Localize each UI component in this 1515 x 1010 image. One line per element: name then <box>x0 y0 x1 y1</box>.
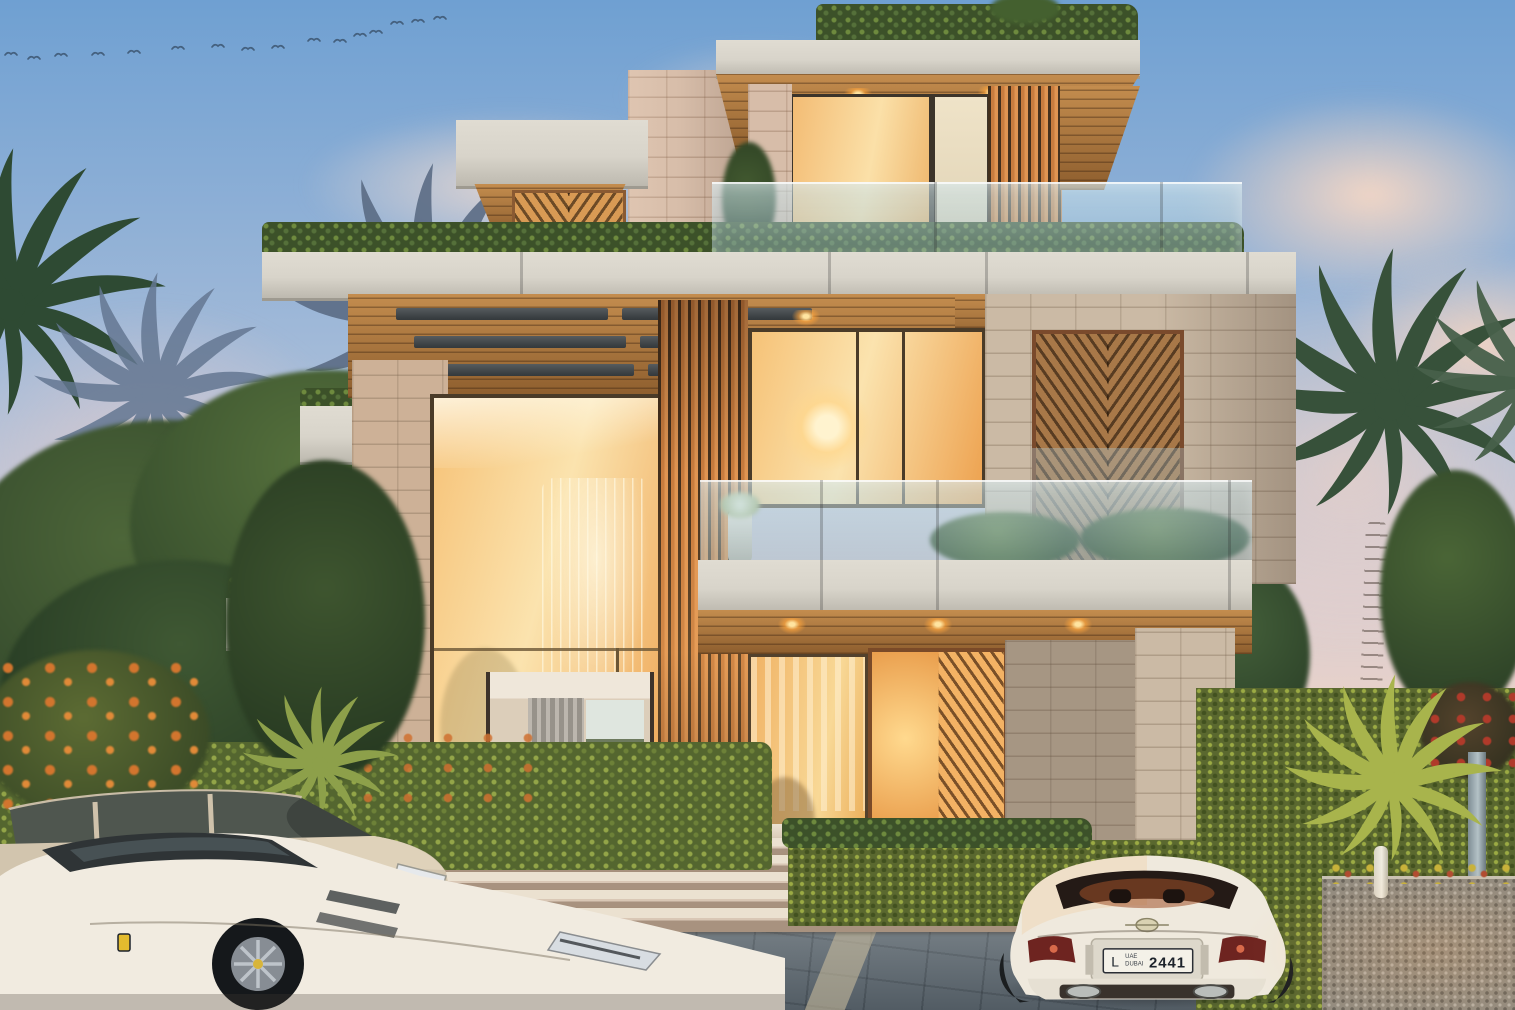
slab-joint <box>820 560 823 612</box>
plate-emirate: DUBAI <box>1125 962 1144 968</box>
sportscar-sill-shadow <box>0 994 785 1010</box>
coupe-headrest <box>1109 889 1131 903</box>
balustrade-joint <box>936 480 939 568</box>
penthouse-fascia <box>716 40 1140 79</box>
sportscar-badge <box>118 934 130 951</box>
ceiling-vent <box>414 336 626 348</box>
window-mullion <box>902 332 905 504</box>
plate-letter: L <box>1111 954 1119 970</box>
ceiling-vent <box>396 308 608 320</box>
left-penthouse-roof <box>456 120 648 189</box>
plate-country: UAE <box>1125 954 1137 960</box>
downlight <box>924 618 952 634</box>
taillight-glow <box>1050 945 1058 953</box>
ceiling-vent <box>432 364 634 376</box>
sportscar-hub <box>253 959 263 969</box>
slab-joint <box>1246 252 1249 298</box>
ivy-planter-top-growth <box>782 818 1092 848</box>
balcony-glass-balustrade <box>700 480 1252 570</box>
balustrade-joint <box>1160 182 1163 254</box>
left-wing-upper-slab <box>300 406 356 465</box>
coupe-headrest <box>1163 889 1185 903</box>
slab-joint <box>936 560 939 612</box>
slab-joint <box>828 252 831 298</box>
slab-joint <box>985 252 988 298</box>
balustrade-joint <box>934 182 937 254</box>
plinth-cap <box>1085 945 1093 975</box>
slab-joint <box>520 252 523 298</box>
window-mullion <box>856 332 859 504</box>
coupe-exhaust <box>1194 985 1228 998</box>
coupe-cabin-glow <box>1079 878 1214 908</box>
sports-car <box>0 828 795 1010</box>
slab-joint <box>1228 560 1231 612</box>
downlight <box>778 618 806 634</box>
interior-cove-light <box>434 398 658 468</box>
plinth-cap <box>1201 945 1209 975</box>
downlight <box>792 310 820 326</box>
warm-light-glow <box>1240 860 1515 1010</box>
balustrade-joint <box>820 480 823 568</box>
plate-number: 2441 <box>1149 956 1186 972</box>
downlight <box>1064 618 1092 634</box>
transom-line <box>434 648 658 651</box>
coupe-exhaust <box>1067 985 1101 998</box>
architectural-render-scene: L UAE DUBAI 2441 <box>0 0 1515 1010</box>
balustrade-joint <box>1228 480 1231 568</box>
birds-flock <box>0 0 520 90</box>
balcony-slab <box>698 560 1252 615</box>
